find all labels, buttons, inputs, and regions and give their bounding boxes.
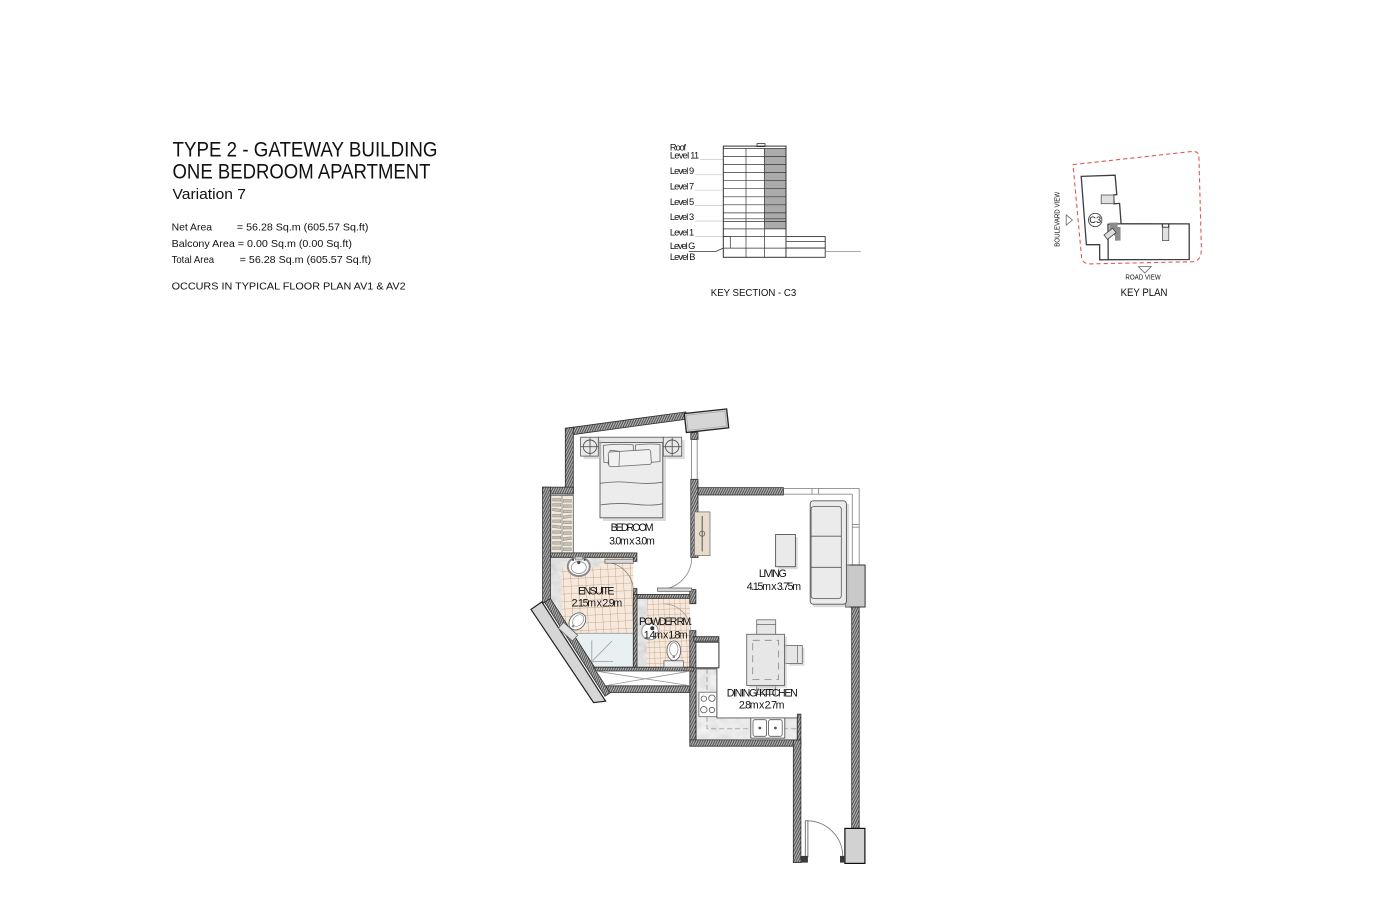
svg-text:Level 5: Level 5 [670, 197, 694, 207]
svg-text:3.0m x 3.0m: 3.0m x 3.0m [609, 535, 655, 547]
svg-text:KEY SECTION - C3: KEY SECTION - C3 [711, 288, 797, 299]
svg-text:BOULEVARD VIEW: BOULEVARD VIEW [1053, 192, 1062, 247]
svg-text:TYPE 2 - GATEWAY BUILDING: TYPE 2 - GATEWAY BUILDING [173, 138, 438, 162]
svg-text:Balcony Area = 0.00 Sq.m (0.00: Balcony Area = 0.00 Sq.m (0.00 Sq.ft) [172, 239, 352, 250]
svg-text:2.15m x 2.9m: 2.15m x 2.9m [572, 597, 623, 609]
svg-text:2.8m x 2.7m: 2.8m x 2.7m [739, 700, 785, 712]
svg-text:4.15m x 3.75m: 4.15m x 3.75m [747, 581, 802, 593]
svg-text:Total Area: Total Area [172, 255, 215, 266]
svg-text:Level 7: Level 7 [670, 181, 694, 191]
svg-text:= 56.28 Sq.m (605.57 Sq.ft): = 56.28 Sq.m (605.57 Sq.ft) [237, 223, 369, 234]
svg-text:1.4m x 1.8m: 1.4m x 1.8m [644, 630, 688, 642]
svg-text:POWDER RM.: POWDER RM. [639, 616, 692, 628]
svg-text:Level B: Level B [670, 252, 696, 262]
svg-text:DINING/ KITCHEN: DINING/ KITCHEN [727, 687, 798, 699]
svg-text:= 56.28 Sq.m (605.57 Sq.ft): = 56.28 Sq.m (605.57 Sq.ft) [240, 255, 372, 266]
svg-text:C3: C3 [1089, 215, 1101, 225]
svg-text:Level 3: Level 3 [670, 212, 694, 222]
svg-text:Variation 7: Variation 7 [173, 186, 247, 203]
svg-text:KEY PLAN: KEY PLAN [1121, 287, 1168, 299]
svg-text:Level 9: Level 9 [670, 166, 694, 176]
svg-text:Net Area: Net Area [172, 223, 213, 234]
svg-text:ONE BEDROOM APARTMENT: ONE BEDROOM APARTMENT [173, 160, 431, 184]
svg-text:BEDROOM: BEDROOM [611, 522, 654, 534]
svg-text:LIVING: LIVING [759, 568, 787, 580]
svg-text:Level 11: Level 11 [670, 151, 699, 161]
svg-text:ENSUITE: ENSUITE [578, 586, 615, 598]
svg-text:ROAD VIEW: ROAD VIEW [1125, 273, 1160, 282]
svg-text:Level G: Level G [670, 241, 696, 251]
svg-text:OCCURS IN TYPICAL FLOOR PLAN A: OCCURS IN TYPICAL FLOOR PLAN AV1 & AV2 [172, 281, 406, 292]
svg-text:Level 1: Level 1 [670, 228, 694, 238]
